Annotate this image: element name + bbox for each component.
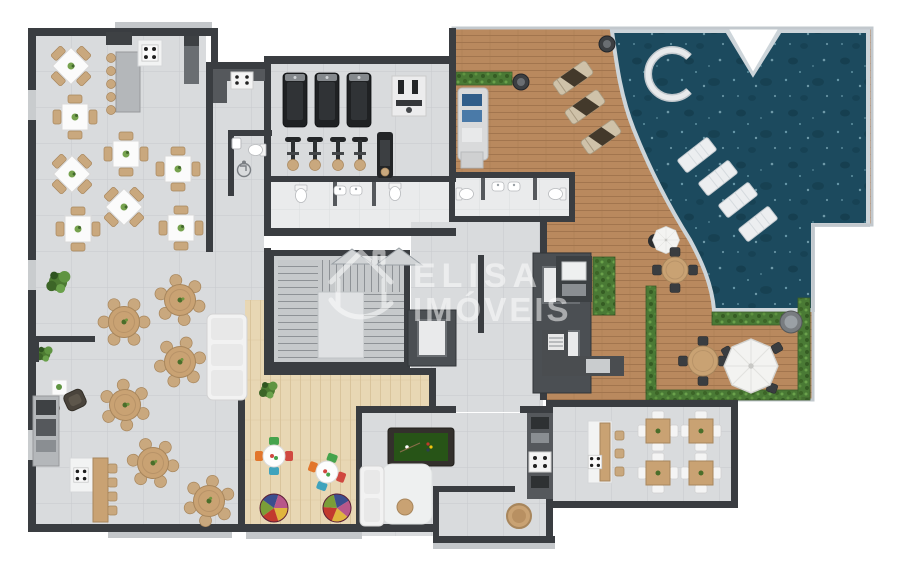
bar-stool xyxy=(107,67,116,76)
watermark-line2: IMÓVEIS xyxy=(413,291,572,328)
sectional-sofa xyxy=(207,314,247,400)
floor-plan: ELISA IMÓVEIS xyxy=(0,0,900,570)
counter-top xyxy=(586,359,610,373)
bar-stool xyxy=(107,80,116,89)
cooktop-icon xyxy=(588,455,602,469)
cooktop-icon xyxy=(142,45,158,61)
service-counter-top xyxy=(184,36,199,46)
weight-machine xyxy=(392,76,426,116)
buffet-island xyxy=(116,52,140,112)
kitchen-sink xyxy=(36,400,56,415)
bar-table xyxy=(93,458,108,522)
chair xyxy=(689,265,698,275)
chair xyxy=(653,265,662,275)
bar-stool xyxy=(107,93,116,102)
bar-stool xyxy=(107,106,116,115)
hedge-strip xyxy=(646,286,656,392)
sink-counter xyxy=(106,32,132,45)
hedge-strip xyxy=(646,390,810,400)
toilet xyxy=(249,144,267,156)
watermark-line1: ELISA xyxy=(413,257,543,295)
treadmill xyxy=(347,73,371,127)
bar-stool xyxy=(108,492,117,501)
treadmill xyxy=(283,73,307,127)
cooktop-counter xyxy=(231,72,253,89)
cooktop-icon xyxy=(74,468,88,482)
chair xyxy=(670,248,680,257)
side-table xyxy=(461,152,483,168)
vertical-garden xyxy=(593,257,615,315)
treadmill xyxy=(315,73,339,127)
patio-umbrella xyxy=(724,339,778,393)
sink xyxy=(232,138,241,149)
sink xyxy=(508,182,520,191)
sofa xyxy=(360,466,384,526)
floor-plan-canvas: ELISA IMÓVEIS xyxy=(0,0,900,570)
deck-planter xyxy=(456,72,512,85)
wood-accent-floor xyxy=(245,300,264,402)
kitchen-appliance xyxy=(36,440,56,452)
deck-sofa xyxy=(458,88,488,168)
bar-stool xyxy=(107,54,116,63)
stool xyxy=(615,467,624,476)
toilet xyxy=(389,183,401,201)
bar-stool xyxy=(108,506,117,515)
sink xyxy=(334,186,346,195)
toilet xyxy=(456,188,474,200)
stair-landing xyxy=(318,292,364,358)
bean-bag xyxy=(260,494,288,522)
pouf xyxy=(397,499,413,515)
hedge-strip xyxy=(798,298,810,398)
island-wood-top xyxy=(600,423,610,481)
kitchen-appliance xyxy=(36,419,56,436)
sink xyxy=(350,186,362,195)
bar-stool xyxy=(108,464,117,473)
kitchenette xyxy=(527,413,553,499)
bar-stool xyxy=(108,478,117,487)
chair xyxy=(679,356,688,366)
round-planter-top xyxy=(785,316,798,329)
chair xyxy=(698,337,708,346)
toilet xyxy=(549,188,567,200)
stool xyxy=(615,449,624,458)
billiard-table xyxy=(388,428,454,466)
wicker-chair xyxy=(507,504,531,528)
chair xyxy=(670,284,680,293)
toilet xyxy=(295,185,307,203)
chair xyxy=(698,377,708,386)
elliptical-machine xyxy=(377,132,393,178)
stove xyxy=(529,452,551,472)
sink xyxy=(492,182,504,191)
wheelchair-icon-head xyxy=(242,161,246,165)
stair-flight xyxy=(278,260,318,358)
stool xyxy=(615,431,624,440)
